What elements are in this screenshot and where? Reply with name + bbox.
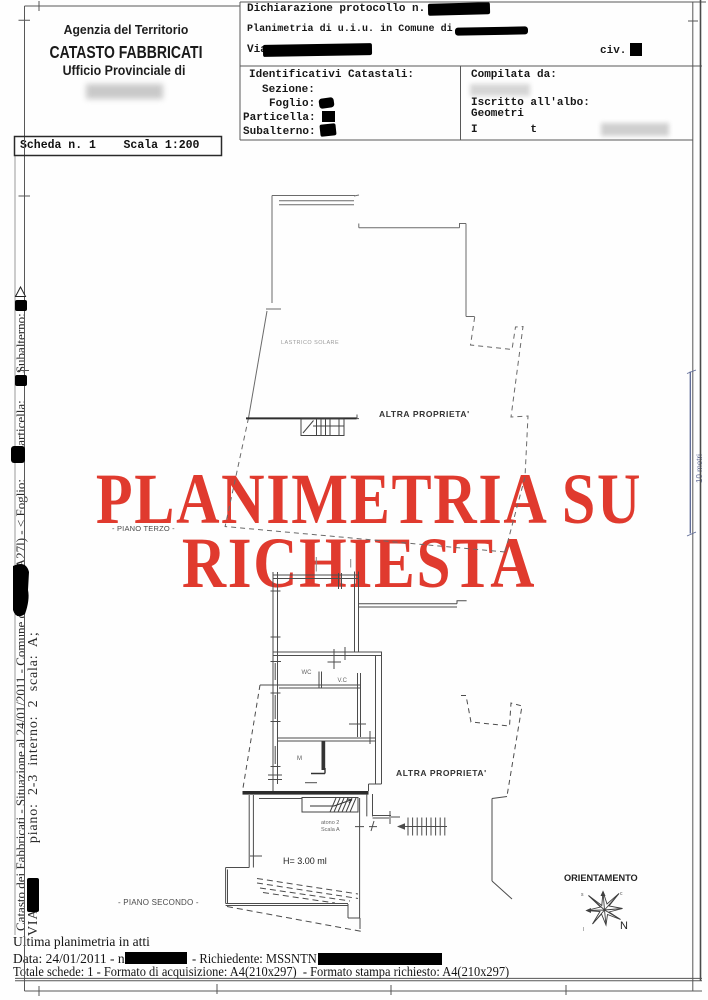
- svg-text:c: c: [620, 891, 623, 897]
- svg-text:s: s: [581, 892, 584, 898]
- svg-text:l: l: [583, 927, 584, 933]
